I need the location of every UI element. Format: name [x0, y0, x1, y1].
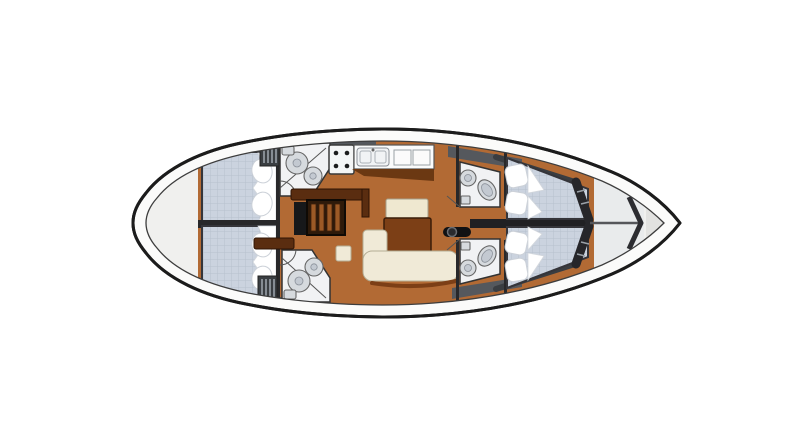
- nav-counter-top: [291, 189, 368, 200]
- settee-bench: [363, 251, 458, 281]
- companionway-stairs: [294, 200, 345, 235]
- salon-bulkhead-top: [456, 143, 459, 207]
- pillow: [504, 163, 529, 189]
- nav-counter-bottom: [254, 238, 294, 249]
- counter-locker: [413, 150, 430, 165]
- table-leaf: [386, 199, 428, 218]
- stove: [329, 145, 354, 174]
- sink: [284, 290, 296, 299]
- pillow: [504, 257, 529, 282]
- stool: [336, 246, 351, 261]
- counter-locker: [394, 150, 411, 165]
- salon-bulkhead-bottom: [456, 240, 459, 302]
- yacht-floor-plan: [0, 0, 800, 448]
- mast-foot: [443, 227, 471, 237]
- deck-plan-svg: [0, 0, 800, 448]
- nav-counter-return: [362, 189, 369, 217]
- pillow: [504, 190, 529, 215]
- salon-table: [384, 218, 431, 254]
- faucet: [372, 149, 375, 152]
- pillow: [504, 230, 529, 256]
